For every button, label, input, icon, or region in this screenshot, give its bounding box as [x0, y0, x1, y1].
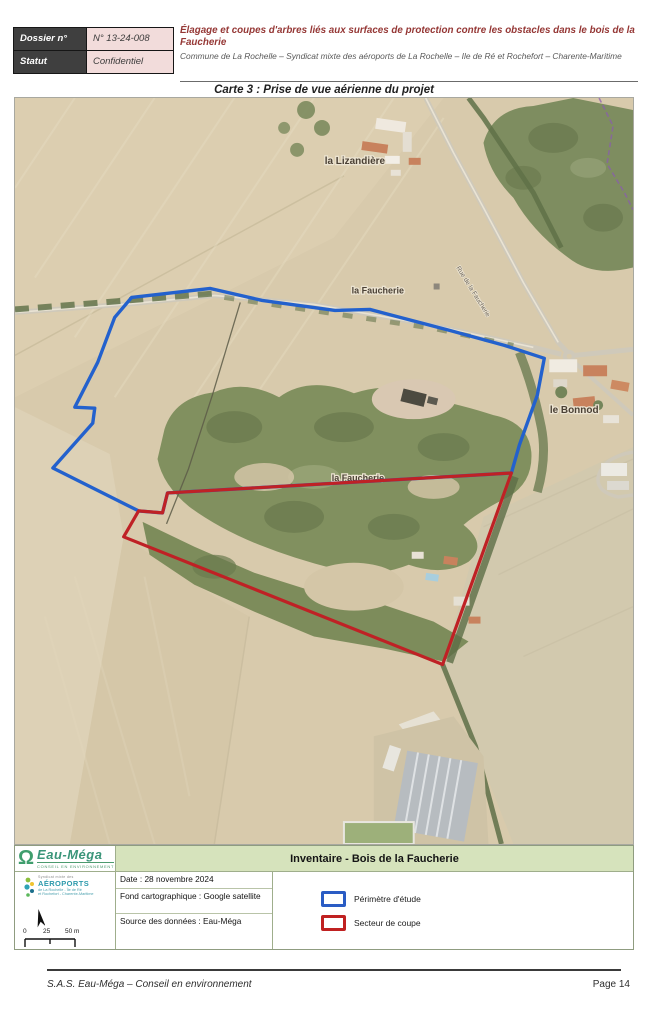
secteur-label: Secteur de coupe — [354, 918, 421, 928]
label-faucherie-top: la Faucherie — [352, 285, 404, 295]
info-date: Date : 28 novembre 2024 — [116, 872, 272, 889]
aeroports-sub2: et Rochefort - Charente-Maritime — [38, 892, 94, 896]
eaumega-name: Eau-Méga — [37, 848, 114, 861]
legend-item-perimetre: Périmètre d'étude — [321, 891, 633, 907]
scale-bar: 0 25 50 m — [23, 928, 93, 953]
label-lizandiere: la Lizandière — [325, 156, 386, 167]
aerial-map: la Lizandière la Faucherie la Faucherie … — [14, 97, 634, 845]
header-table: Dossier n° N° 13-24-008 Statut Confident… — [13, 27, 174, 74]
north-arrow-icon — [27, 906, 45, 928]
header-rule — [180, 81, 638, 82]
eaumega-omega-icon: Ω — [18, 848, 34, 868]
perimetre-label: Périmètre d'étude — [354, 894, 421, 904]
footer-company: S.A.S. Eau-Méga – Conseil en environneme… — [47, 979, 252, 990]
document-page: Dossier n° N° 13-24-008 Statut Confident… — [0, 0, 648, 1025]
secteur-swatch-icon — [321, 915, 346, 931]
eaumega-logo: Ω Eau-Méga Conseil en Environnement — [15, 846, 115, 872]
scale-50m: 50 m — [65, 928, 79, 935]
scale-bar-ticks — [23, 938, 83, 948]
document-subtitle: Commune de La Rochelle – Syndicat mixte … — [180, 51, 638, 62]
info-source: Source des données : Eau-Méga — [116, 914, 272, 949]
legend-key-cell: Périmètre d'étude Secteur de coupe — [273, 872, 633, 949]
statut-label: Statut — [14, 51, 87, 74]
aeroports-logo: Syndicat mixte des AÉROPORTS de La Roche… — [23, 876, 94, 898]
footer-page-number: Page 14 — [593, 979, 630, 990]
statut-value: Confidentiel — [87, 51, 173, 74]
info-fond: Fond cartographique : Google satellite — [116, 889, 272, 914]
map-info-cell: Date : 28 novembre 2024 Fond cartographi… — [115, 872, 273, 949]
legend-table: Ω Eau-Méga Conseil en Environnement Inve… — [14, 845, 634, 950]
aeroports-dots-icon — [23, 876, 36, 898]
legend-banner: Inventaire - Bois de la Faucherie — [115, 846, 633, 872]
map-caption: Carte 3 : Prise de vue aérienne du proje… — [0, 84, 648, 96]
dossier-value: N° 13-24-008 — [87, 28, 173, 51]
scale-25: 25 — [43, 928, 65, 935]
aerial-map-svg: la Lizandière la Faucherie la Faucherie … — [15, 98, 633, 844]
eaumega-subtitle: Conseil en Environnement — [37, 862, 114, 869]
poi-icon — [434, 284, 440, 290]
label-bonnod: le Bonnod — [550, 405, 599, 416]
document-title: Élagage et coupes d'arbres liés aux surf… — [180, 25, 638, 50]
legend-left-cell: Syndicat mixte des AÉROPORTS de La Roche… — [15, 872, 115, 949]
footer-rule — [47, 969, 621, 971]
perimetre-swatch-icon — [321, 891, 346, 907]
dossier-label: Dossier n° — [14, 28, 87, 51]
legend-item-secteur: Secteur de coupe — [321, 915, 633, 931]
aeroports-name: AÉROPORTS — [38, 880, 94, 888]
scale-0: 0 — [23, 928, 43, 935]
